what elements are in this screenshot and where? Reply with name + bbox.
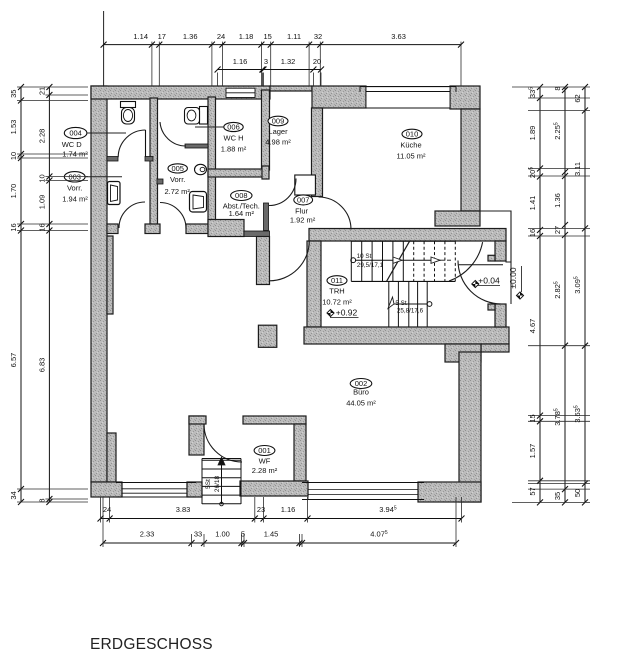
- svg-text:1.09: 1.09: [37, 195, 46, 210]
- svg-text:57: 57: [528, 487, 537, 495]
- svg-text:10.72 m²: 10.72 m²: [322, 298, 352, 307]
- svg-text:1.88 m²: 1.88 m²: [221, 145, 247, 154]
- svg-text:4.98 m²: 4.98 m²: [265, 138, 291, 147]
- svg-text:004: 004: [69, 129, 82, 138]
- svg-text:Flur: Flur: [295, 207, 308, 216]
- svg-text:5: 5: [241, 530, 245, 539]
- svg-text:011: 011: [331, 276, 343, 285]
- svg-text:+0.92: +0.92: [336, 308, 358, 318]
- svg-text:1.00: 1.00: [215, 530, 230, 539]
- svg-text:16: 16: [528, 229, 537, 237]
- svg-text:3.11: 3.11: [573, 162, 582, 176]
- svg-text:1.36: 1.36: [553, 193, 562, 208]
- svg-text:1.14: 1.14: [133, 32, 148, 41]
- svg-text:1.70: 1.70: [9, 184, 18, 199]
- svg-text:1.89: 1.89: [528, 126, 537, 141]
- svg-text:WC H: WC H: [224, 134, 244, 143]
- svg-text:1.53: 1.53: [9, 120, 18, 135]
- svg-text:50: 50: [573, 489, 582, 497]
- svg-text:1.16: 1.16: [281, 505, 296, 514]
- svg-text:11.05 m²: 11.05 m²: [396, 152, 426, 161]
- svg-text:2.28: 2.28: [37, 129, 46, 144]
- svg-text:27: 27: [553, 226, 562, 234]
- svg-text:33: 33: [194, 530, 202, 539]
- svg-text:009: 009: [272, 117, 285, 126]
- svg-text:±0.00: ±0.00: [508, 267, 518, 288]
- svg-text:6.57: 6.57: [9, 353, 18, 368]
- svg-text:TRH: TRH: [329, 287, 344, 296]
- svg-text:1.36: 1.36: [183, 32, 198, 41]
- svg-text:2.28 m²: 2.28 m²: [252, 466, 278, 475]
- svg-text:001: 001: [258, 446, 271, 455]
- svg-text:4.67: 4.67: [528, 319, 537, 334]
- svg-text:21: 21: [37, 87, 46, 95]
- svg-text:32: 32: [314, 32, 322, 41]
- svg-text:8: 8: [553, 86, 562, 90]
- svg-text:1.11: 1.11: [287, 32, 301, 41]
- svg-text:8: 8: [37, 498, 46, 502]
- svg-text:10 St: 10 St: [357, 253, 372, 260]
- svg-text:Küche: Küche: [400, 141, 421, 150]
- svg-text:16: 16: [9, 223, 18, 231]
- svg-text:16: 16: [37, 223, 46, 231]
- svg-text:35: 35: [9, 90, 18, 98]
- svg-text:24: 24: [217, 32, 225, 41]
- svg-text:1.18: 1.18: [239, 32, 254, 41]
- svg-text:23: 23: [257, 505, 265, 514]
- svg-text:WC D: WC D: [62, 140, 83, 149]
- svg-text:1.64 m²: 1.64 m²: [229, 209, 255, 218]
- svg-text:10: 10: [9, 152, 18, 160]
- svg-text:Vorr.: Vorr.: [170, 175, 185, 184]
- svg-text:34: 34: [9, 491, 18, 499]
- svg-text:3.63: 3.63: [391, 32, 406, 41]
- svg-text:26/18: 26/18: [214, 475, 221, 492]
- svg-text:1.32: 1.32: [281, 57, 296, 66]
- svg-text:10: 10: [37, 174, 46, 182]
- svg-text:2.33: 2.33: [140, 530, 155, 539]
- svg-text:1.92 m²: 1.92 m²: [290, 216, 316, 225]
- svg-text:1.45: 1.45: [264, 530, 279, 539]
- svg-text:010: 010: [406, 130, 419, 139]
- svg-text:20: 20: [313, 57, 321, 66]
- svg-text:Vorr.: Vorr.: [67, 183, 82, 192]
- svg-text:5St: 5St: [205, 479, 212, 489]
- svg-text:3.83: 3.83: [176, 505, 191, 514]
- svg-text:1.16: 1.16: [233, 57, 248, 66]
- svg-text:3: 3: [264, 57, 268, 66]
- svg-text:+0.04: +0.04: [478, 275, 500, 285]
- svg-text:006: 006: [227, 123, 240, 132]
- svg-text:44.05 m²: 44.05 m²: [346, 399, 376, 408]
- svg-text:ERDGESCHOSS: ERDGESCHOSS: [90, 636, 213, 653]
- svg-text:25,8/17,6: 25,8/17,6: [397, 307, 424, 314]
- svg-text:35: 35: [553, 492, 562, 500]
- svg-text:2.72 m²: 2.72 m²: [164, 187, 190, 196]
- svg-text:Lager: Lager: [268, 127, 288, 136]
- svg-text:Büro: Büro: [353, 388, 369, 397]
- svg-text:1.94 m²: 1.94 m²: [62, 195, 88, 204]
- svg-text:WF: WF: [259, 457, 271, 466]
- svg-text:1.41: 1.41: [528, 196, 537, 211]
- svg-text:007: 007: [297, 196, 310, 205]
- svg-text:15: 15: [264, 32, 272, 41]
- svg-text:5 St: 5 St: [395, 300, 406, 307]
- svg-text:008: 008: [235, 191, 248, 200]
- svg-text:1.57: 1.57: [528, 444, 537, 459]
- svg-text:15: 15: [528, 414, 537, 422]
- svg-text:005: 005: [171, 164, 184, 173]
- svg-text:6.83: 6.83: [37, 358, 46, 373]
- svg-text:17: 17: [158, 32, 166, 41]
- svg-text:62: 62: [573, 94, 582, 102]
- svg-text:29,5/17,1: 29,5/17,1: [357, 262, 384, 269]
- svg-text:24: 24: [103, 505, 111, 514]
